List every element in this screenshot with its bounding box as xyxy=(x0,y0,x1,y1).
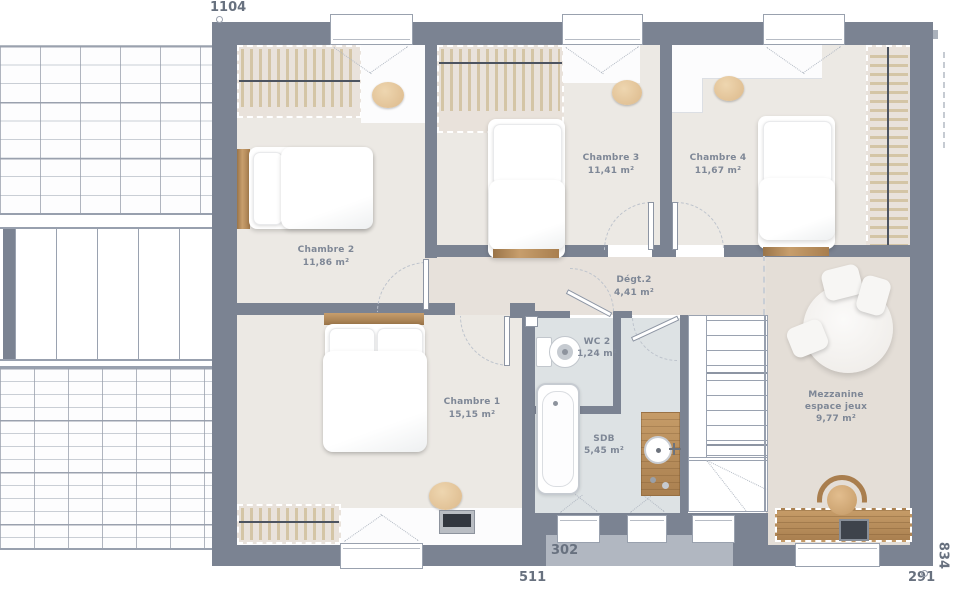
laptop xyxy=(839,519,869,541)
room-name: SDB xyxy=(544,433,664,445)
mezzanine-open-edge-dash xyxy=(763,255,765,315)
room-label-chambre-1: Chambre 1 15,15 m² xyxy=(412,396,532,422)
desk-chair-seat xyxy=(827,485,857,515)
tv-screen xyxy=(443,514,471,527)
stair-treads xyxy=(707,320,767,458)
wall-niche-wc xyxy=(525,316,538,327)
window-bay-chambre-3 xyxy=(563,45,640,83)
room-name: Chambre 1 xyxy=(412,396,532,409)
room-name: WC 2 xyxy=(537,336,657,348)
closet-chambre-4-clothes xyxy=(870,49,908,247)
stool-chambre-1 xyxy=(429,482,462,510)
door-leaf-chambre-1 xyxy=(504,316,510,366)
room-label-wc: WC 2 1,24 m² xyxy=(537,336,657,360)
stair-winder-edge-1 xyxy=(689,457,767,458)
dimension-right-side: 834 xyxy=(936,536,951,576)
terrace-planks xyxy=(15,229,212,359)
wall-exterior-right xyxy=(910,22,933,566)
faucet-h xyxy=(669,448,681,450)
duvet-chambre-4 xyxy=(759,178,835,240)
door-leaf-chambre-2 xyxy=(423,259,429,310)
stair-landing-line-1 xyxy=(707,372,767,374)
room-label-degagement: Dégt.2 4,41 m² xyxy=(574,274,694,300)
wall-chambre2-east xyxy=(425,45,437,258)
room-area: 5,45 m² xyxy=(544,445,664,457)
roof-tiles-lower xyxy=(0,368,212,550)
terrace-edge-wall xyxy=(3,229,15,359)
closet-chambre-3-rod xyxy=(439,62,562,64)
soap-dot-1 xyxy=(650,477,656,483)
room-label-chambre-4: Chambre 4 11,67 m² xyxy=(658,152,778,178)
duvet-chambre-3 xyxy=(489,180,565,250)
dimension-top: 1104 xyxy=(210,0,246,15)
room-label-sdb: SDB 5,45 m² xyxy=(544,433,664,457)
closet-chambre-4-rod xyxy=(887,47,889,249)
window-chambre-3 xyxy=(562,14,643,45)
stool-chambre-4 xyxy=(714,76,744,101)
wall-wc-east xyxy=(613,318,621,406)
faucet-v xyxy=(673,443,675,455)
window-sdb-2 xyxy=(627,515,667,543)
room-name: Chambre 2 xyxy=(266,244,386,257)
bed-footboard-chambre-4 xyxy=(763,247,829,256)
wall-stair-west xyxy=(680,315,688,513)
room-label-mezzanine: Mezzanine espace jeux 9,77 m² xyxy=(776,389,896,425)
desk-chambre-4-return xyxy=(672,78,703,113)
floor-plan: Chambre 2 11,86 m² Chambre 3 11,41 m² Ch… xyxy=(0,0,960,593)
stair-landing-line-2 xyxy=(707,444,767,446)
room-area: 11,67 m² xyxy=(658,165,778,178)
room-name: Chambre 3 xyxy=(551,152,671,165)
dimension-marker-right xyxy=(921,570,928,577)
room-area: 1,24 m² xyxy=(537,348,657,360)
wall-wc-north-1 xyxy=(535,311,570,318)
room-name-line2: espace jeux xyxy=(776,401,896,413)
closet-chambre-1-clothes xyxy=(241,508,337,540)
wall-step-left xyxy=(522,513,547,566)
dimension-bottom-left: 511 xyxy=(519,570,546,585)
stool-chambre-3 xyxy=(612,80,642,105)
window-stair xyxy=(692,515,735,543)
closet-chambre-1-rod xyxy=(239,521,339,523)
closet-chambre-2-rod xyxy=(239,80,360,82)
pillow-chambre-2 xyxy=(253,152,283,225)
roof-gutter-top xyxy=(0,213,212,229)
wall-chambre3-chambre4 xyxy=(660,45,672,250)
door-leaf-chambre-4 xyxy=(672,202,678,250)
window-chambre-1 xyxy=(340,543,423,569)
room-area: 9,77 m² xyxy=(776,413,896,425)
room-name: Chambre 4 xyxy=(658,152,778,165)
room-area: 15,15 m² xyxy=(412,409,532,422)
stair-rail xyxy=(764,316,766,511)
room-label-chambre-2: Chambre 2 11,86 m² xyxy=(266,244,386,270)
bed-footboard-chambre-3 xyxy=(493,249,559,258)
closet-chambre-3-clothes xyxy=(441,49,560,111)
bathtub-drain xyxy=(553,401,558,406)
window-chambre-2 xyxy=(330,14,413,45)
wall-wc-north-2 xyxy=(613,311,632,318)
room-name: Mezzanine xyxy=(776,389,896,401)
stool-chambre-2 xyxy=(372,82,404,108)
soap-dot-2 xyxy=(662,482,669,489)
roof-edge-dashes xyxy=(943,52,945,148)
window-mezzanine xyxy=(795,543,880,567)
room-area: 4,41 m² xyxy=(574,287,694,300)
door-leaf-chambre-3 xyxy=(648,202,654,250)
window-sdb-1 xyxy=(557,515,600,543)
room-area: 11,41 m² xyxy=(551,165,671,178)
room-area: 11,86 m² xyxy=(266,257,386,270)
wall-exterior-left xyxy=(212,22,237,566)
window-chambre-4 xyxy=(763,14,845,45)
stair-winder-edge-2 xyxy=(689,460,767,461)
dimension-bottom-middle: 302 xyxy=(551,543,578,558)
roof-gutter-middle xyxy=(0,359,212,368)
duvet-chambre-2 xyxy=(281,147,373,229)
closet-chambre-2-clothes xyxy=(241,49,358,107)
desk-chambre-4 xyxy=(672,45,822,79)
dimension-marker-top xyxy=(216,16,223,23)
room-name: Dégt.2 xyxy=(574,274,694,287)
roof-tiles-upper xyxy=(0,45,212,214)
room-label-chambre-3: Chambre 3 11,41 m² xyxy=(551,152,671,178)
